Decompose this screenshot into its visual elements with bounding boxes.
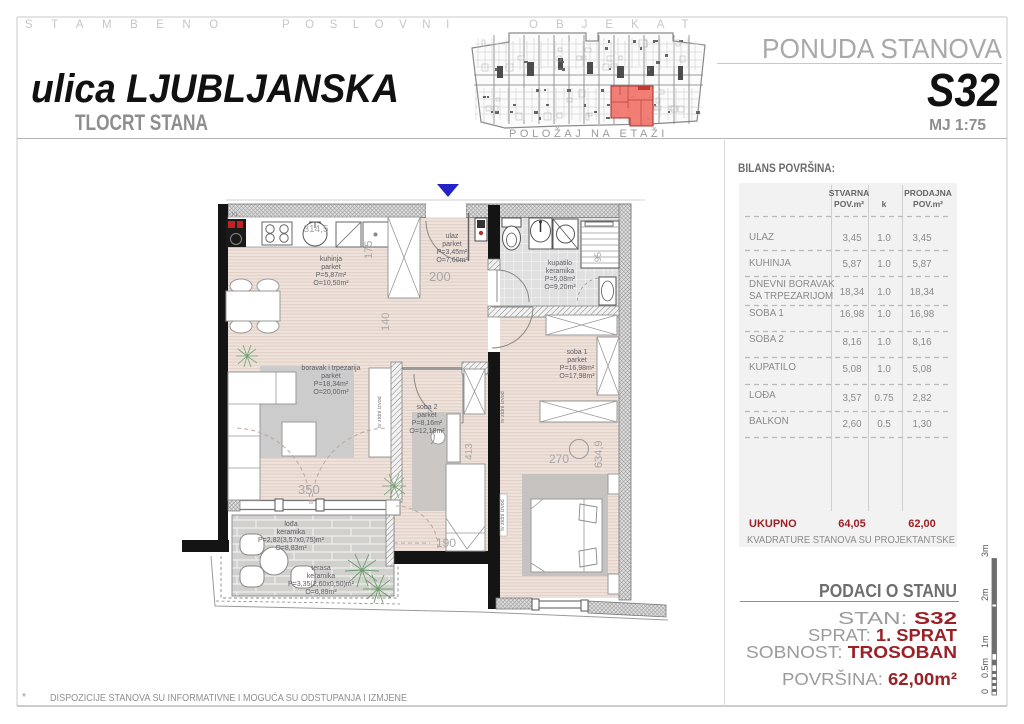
svg-text:LOĐA: LOĐA — [749, 390, 776, 401]
svg-text:190: 190 — [436, 536, 456, 550]
svg-text:k: k — [882, 199, 887, 209]
svg-text:lođa: lođa — [284, 521, 297, 528]
svg-text:parket: parket — [567, 357, 587, 364]
svg-text:314,5: 314,5 — [303, 224, 328, 235]
svg-text:ulaz: ulaz — [446, 233, 459, 240]
svg-text:kupatilo: kupatilo — [548, 260, 572, 267]
svg-text:0: 0 — [980, 689, 990, 694]
svg-text:2,60: 2,60 — [842, 419, 862, 430]
svg-text:POVRŠINA: 62,00m²: POVRŠINA: 62,00m² — [782, 668, 957, 689]
svg-text:0.5m: 0.5m — [980, 658, 990, 678]
svg-text:1.0: 1.0 — [877, 337, 891, 348]
svg-text:P=16,98m²: P=16,98m² — [560, 365, 595, 372]
svg-text:O=9,20m²: O=9,20m² — [544, 284, 576, 291]
svg-text:16,98: 16,98 — [910, 309, 935, 320]
svg-text:BILANS POVRŠINA:: BILANS POVRŠINA: — [738, 160, 835, 175]
svg-text:OBJEKAT: OBJEKAT — [529, 19, 707, 31]
svg-text:P=3,35(2,60x0,50)m²: P=3,35(2,60x0,50)m² — [288, 581, 355, 588]
svg-text:64,05: 64,05 — [838, 518, 866, 530]
svg-text:3m: 3m — [980, 544, 990, 557]
svg-text:5,87: 5,87 — [912, 259, 931, 270]
svg-text:1.0: 1.0 — [877, 364, 891, 375]
svg-text:P=8,16m²: P=8,16m² — [412, 420, 443, 427]
svg-text:BALKON: BALKON — [749, 416, 789, 427]
svg-text:3,45: 3,45 — [842, 233, 862, 244]
svg-text:O=8,83m²: O=8,83m² — [275, 545, 307, 552]
svg-text:5,08: 5,08 — [842, 364, 862, 375]
svg-text:1,30: 1,30 — [912, 419, 932, 430]
svg-text:18,34: 18,34 — [840, 287, 865, 298]
svg-text:1.0: 1.0 — [877, 233, 891, 244]
svg-text:634,9: 634,9 — [593, 440, 605, 468]
svg-text:O=17,98m²: O=17,98m² — [559, 373, 595, 380]
svg-text:parket: parket — [442, 241, 462, 248]
svg-text:1.0: 1.0 — [877, 287, 891, 298]
svg-text:P=2,82(3,57x0,75)m²: P=2,82(3,57x0,75)m² — [258, 537, 325, 544]
svg-text:PRODAJNA: PRODAJNA — [904, 188, 952, 198]
svg-text:62,00: 62,00 — [908, 518, 936, 530]
svg-text:ULAZ: ULAZ — [749, 232, 774, 243]
svg-text:140: 140 — [380, 313, 392, 331]
svg-text:POV.m²: POV.m² — [913, 199, 943, 209]
svg-text:SOBA 2: SOBA 2 — [749, 334, 784, 345]
svg-text:PODACI O STANU: PODACI O STANU — [819, 580, 957, 601]
svg-text:1m: 1m — [980, 635, 990, 648]
svg-text:5,87: 5,87 — [842, 259, 861, 270]
svg-text:SOBNOST: TROSOBAN: SOBNOST: TROSOBAN — [746, 642, 957, 662]
svg-text:O=12,18m²: O=12,18m² — [409, 428, 445, 435]
svg-text:PONUDA STANOVA: PONUDA STANOVA — [762, 33, 1003, 64]
svg-text:P=5,87m²: P=5,87m² — [316, 272, 347, 279]
svg-text:0.5: 0.5 — [877, 419, 891, 430]
svg-text:5,08: 5,08 — [912, 364, 932, 375]
svg-text:terasa: terasa — [311, 565, 331, 572]
svg-text:16,98: 16,98 — [840, 309, 865, 320]
svg-text:P=18,34m²: P=18,34m² — [314, 381, 349, 388]
svg-text:TLOCRT STANA: TLOCRT STANA — [75, 110, 208, 135]
svg-text:SOBA 1: SOBA 1 — [749, 308, 784, 319]
svg-text:boravak i trpezarija: boravak i trpezarija — [301, 365, 360, 372]
svg-text:95: 95 — [593, 252, 603, 262]
svg-text:O=7,60m²: O=7,60m² — [436, 257, 468, 264]
svg-text:keramika: keramika — [307, 573, 336, 580]
svg-text:3,57: 3,57 — [842, 393, 861, 404]
svg-text:S32: S32 — [927, 64, 1000, 116]
svg-text:200: 200 — [429, 269, 451, 284]
svg-text:KL: KL — [232, 212, 239, 218]
svg-text:175: 175 — [363, 241, 375, 259]
svg-text:O=6,89m²: O=6,89m² — [305, 589, 337, 596]
svg-text:3,45: 3,45 — [912, 233, 932, 244]
svg-text:270: 270 — [549, 452, 569, 466]
svg-text:DISPOZICIJE STANOVA SU INFORMA: DISPOZICIJE STANOVA SU INFORMATIVNE I MO… — [50, 691, 407, 704]
svg-text:O=20,00m²: O=20,00m² — [313, 389, 349, 396]
svg-text:350: 350 — [298, 482, 320, 497]
svg-text:UKUPNO: UKUPNO — [749, 518, 797, 530]
svg-text:413: 413 — [464, 443, 475, 460]
svg-text:parket: parket — [321, 264, 341, 271]
svg-text:18,34: 18,34 — [910, 287, 935, 298]
svg-text:O=10,50m²: O=10,50m² — [313, 280, 349, 287]
svg-text:keramika: keramika — [277, 529, 306, 536]
svg-text:POLOŽAJ NA ETAŽI: POLOŽAJ NA ETAŽI — [509, 127, 668, 140]
svg-text:tv zidni izvod: tv zidni izvod — [500, 499, 506, 531]
svg-text:SA TRPEZARIJOM: SA TRPEZARIJOM — [749, 291, 833, 302]
svg-text:8,16: 8,16 — [912, 337, 932, 348]
svg-text:tv zidni izvod: tv zidni izvod — [377, 396, 383, 428]
svg-text:MJ 1:75: MJ 1:75 — [929, 117, 986, 134]
svg-text:kuhinja: kuhinja — [320, 256, 342, 263]
svg-text:KUPATILO: KUPATILO — [749, 362, 796, 373]
svg-text:tv zidni izvod: tv zidni izvod — [500, 391, 506, 423]
svg-text:keramika: keramika — [546, 268, 575, 275]
svg-text:POV.m²: POV.m² — [834, 199, 864, 209]
svg-text:1.0: 1.0 — [877, 259, 891, 270]
svg-text:ulica LJUBLJANSKA: ulica LJUBLJANSKA — [31, 67, 399, 111]
svg-text:soba 2: soba 2 — [416, 404, 437, 411]
svg-text:*: * — [22, 692, 26, 703]
svg-text:STAMBENO: STAMBENO — [25, 19, 237, 31]
svg-text:2,82: 2,82 — [912, 393, 931, 404]
svg-text:8,16: 8,16 — [842, 337, 862, 348]
svg-text:2m: 2m — [980, 588, 990, 601]
svg-text:KUHINJA: KUHINJA — [749, 258, 791, 269]
svg-text:parket: parket — [321, 373, 341, 380]
svg-text:DNEVNI BORAVAK: DNEVNI BORAVAK — [749, 279, 835, 290]
svg-text:soba 1: soba 1 — [566, 349, 587, 356]
svg-text:1.0: 1.0 — [877, 309, 891, 320]
svg-text:0.75: 0.75 — [874, 393, 894, 404]
svg-text:KVADRATURE STANOVA SU PROJEKTA: KVADRATURE STANOVA SU PROJEKTANTSKE — [747, 535, 955, 546]
svg-text:STVARNA: STVARNA — [829, 188, 869, 198]
svg-text:parket: parket — [417, 412, 437, 419]
svg-text:POSLOVNI: POSLOVNI — [282, 19, 465, 31]
svg-text:P=5,08m²: P=5,08m² — [545, 276, 576, 283]
svg-text:P=3,45m²: P=3,45m² — [437, 249, 468, 256]
